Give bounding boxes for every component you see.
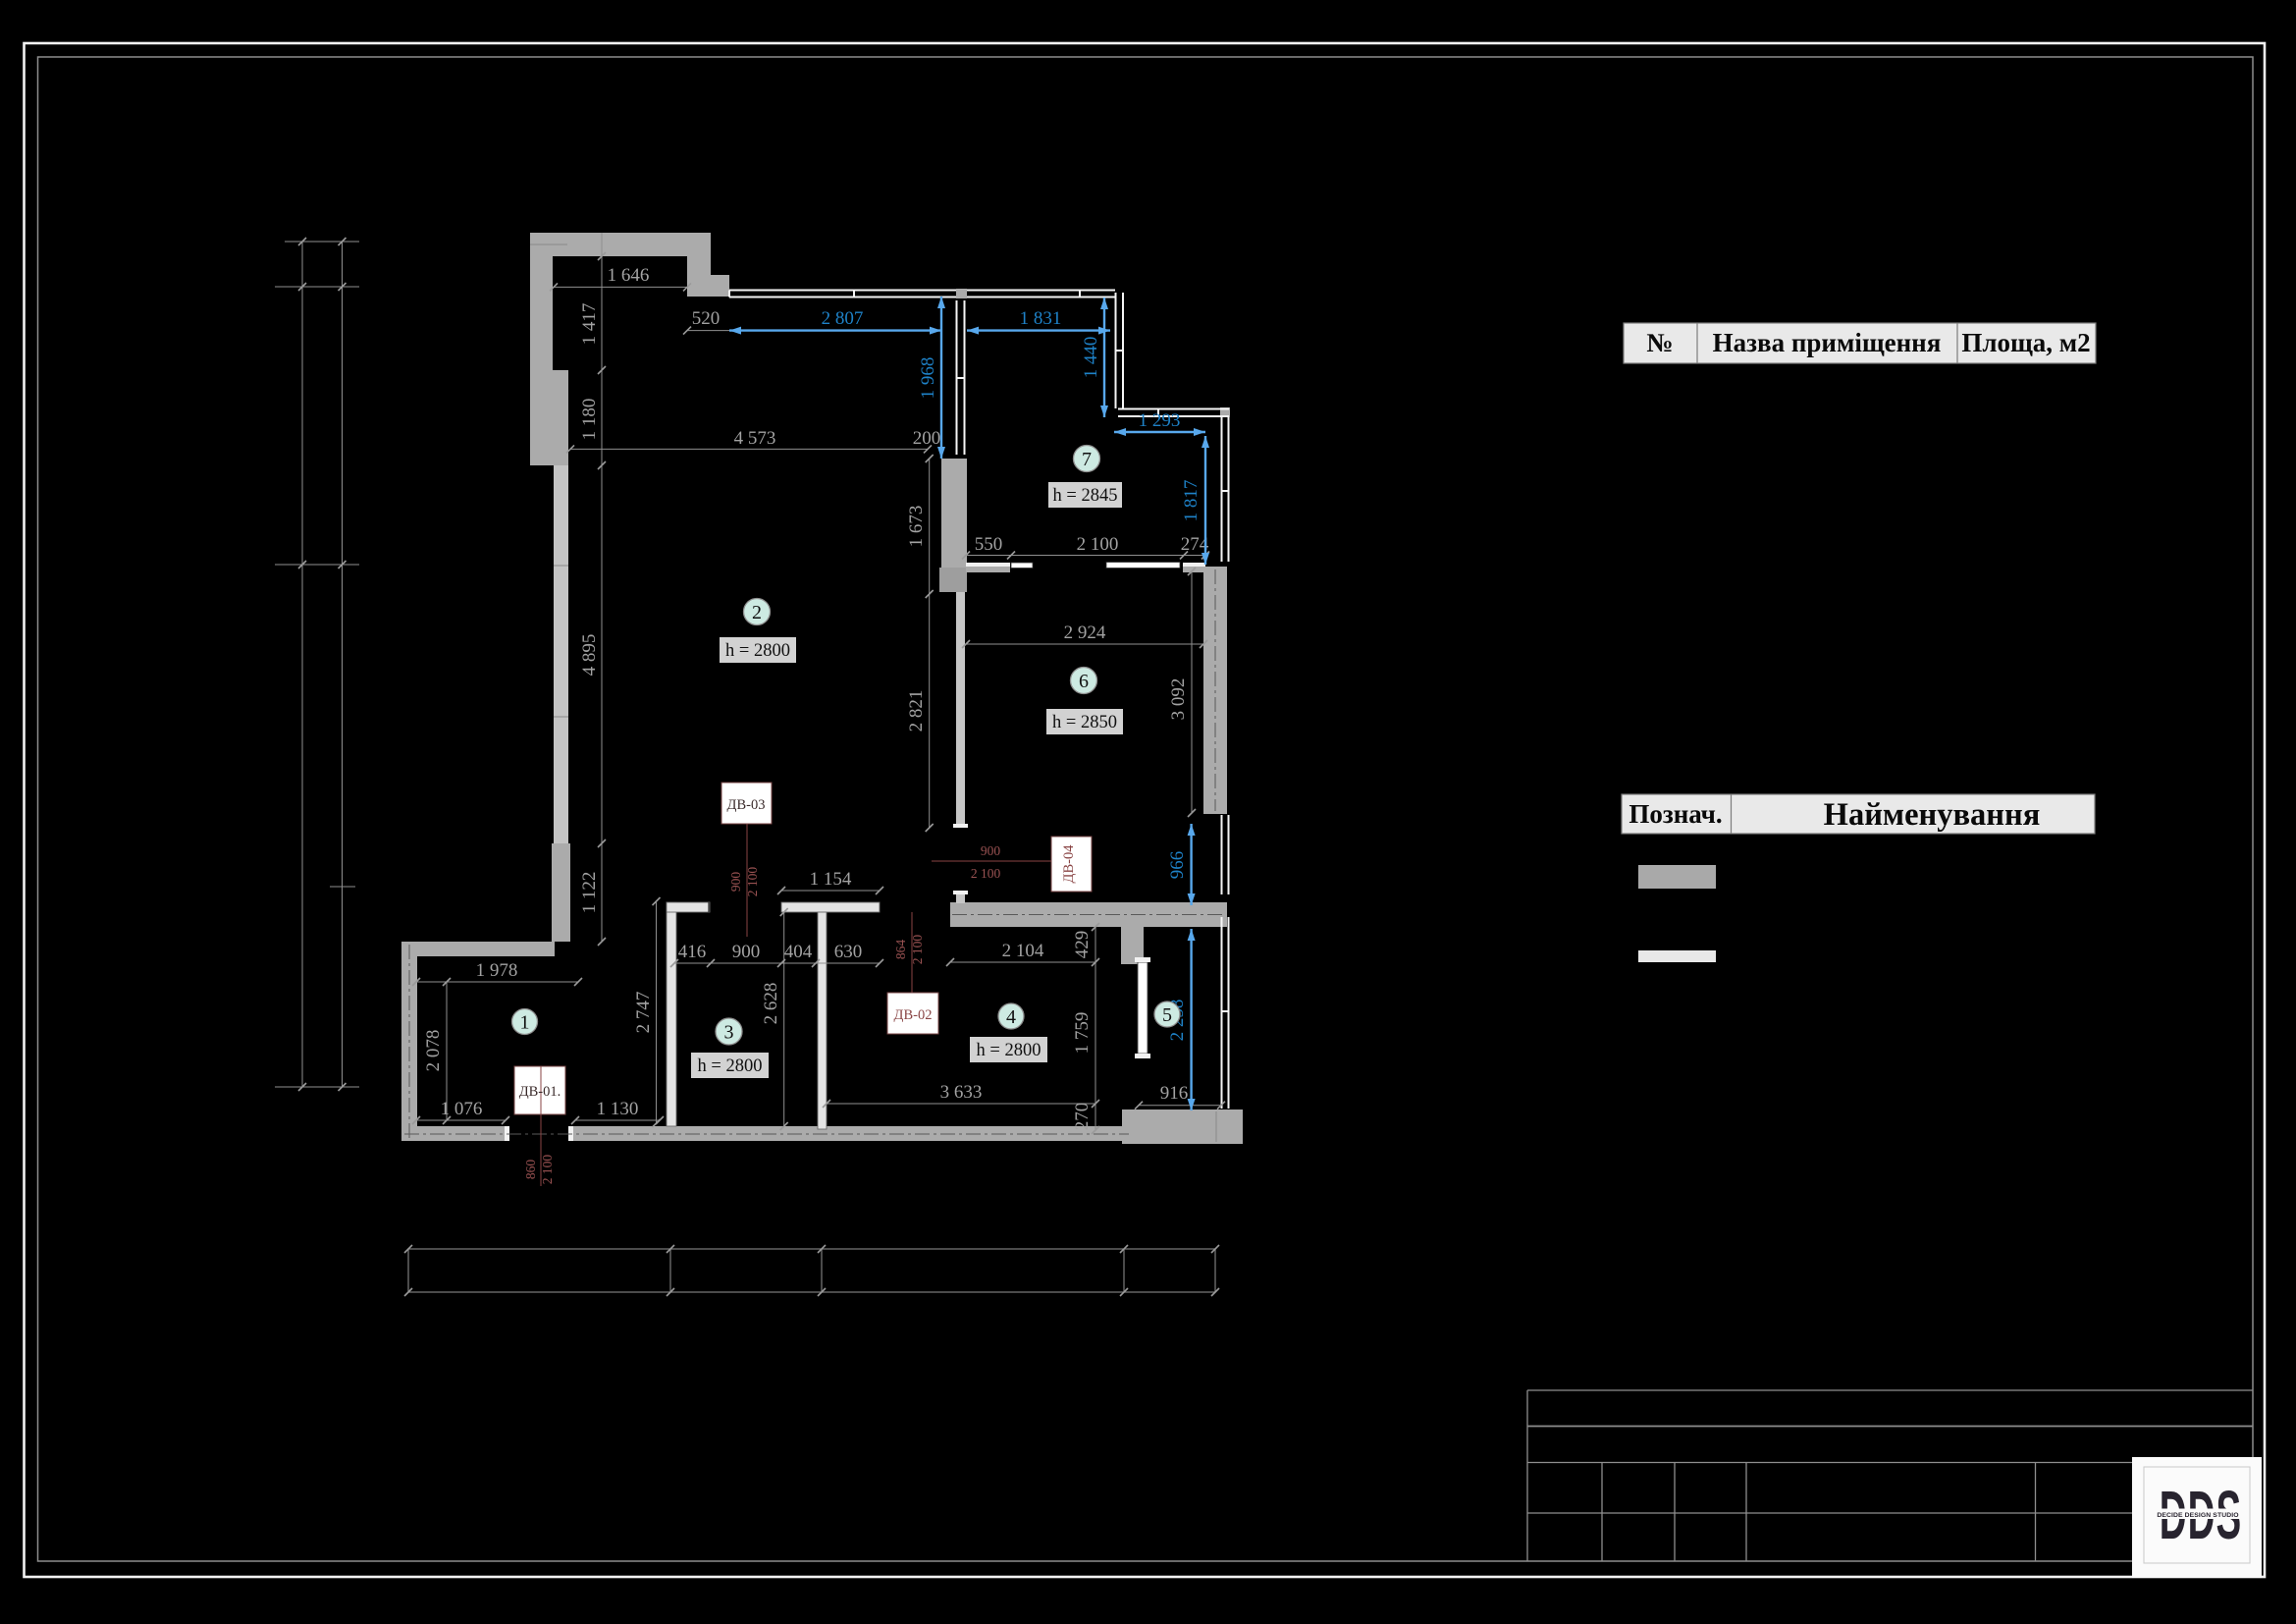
svg-text:429: 429 [1072, 931, 1093, 959]
svg-text:3 092: 3 092 [1168, 678, 1189, 721]
svg-text:ДВ-03: ДВ-03 [727, 797, 766, 813]
svg-text:864: 864 [893, 940, 908, 960]
svg-text:270: 270 [1072, 1103, 1093, 1131]
svg-text:1 646: 1 646 [608, 265, 650, 286]
svg-text:h = 2845: h = 2845 [1053, 486, 1118, 506]
svg-text:1 673: 1 673 [906, 506, 927, 548]
svg-text:Площа, м2: Площа, м2 [1961, 328, 2090, 357]
svg-text:1 293: 1 293 [1139, 410, 1181, 431]
svg-text:520: 520 [692, 308, 721, 329]
svg-text:2 100: 2 100 [745, 867, 760, 897]
svg-text:4 895: 4 895 [579, 634, 600, 677]
svg-text:1 417: 1 417 [579, 303, 600, 346]
svg-text:DECIDE DESIGN STUDIO: DECIDE DESIGN STUDIO [2157, 1512, 2238, 1519]
svg-text:916: 916 [1160, 1083, 1189, 1104]
svg-text:1 154: 1 154 [810, 869, 852, 890]
svg-text:2 104: 2 104 [1002, 941, 1044, 961]
svg-text:h = 2800: h = 2800 [977, 1041, 1041, 1060]
svg-text:2 100: 2 100 [971, 866, 1001, 881]
svg-text:h = 2800: h = 2800 [698, 1056, 763, 1076]
svg-text:1: 1 [520, 1012, 530, 1034]
svg-text:4: 4 [1006, 1006, 1016, 1028]
svg-text:1 130: 1 130 [597, 1099, 639, 1119]
svg-text:ДВ-04: ДВ-04 [1061, 844, 1077, 884]
svg-text:1 831: 1 831 [1020, 308, 1062, 329]
svg-text:860: 860 [523, 1160, 538, 1180]
svg-text:5: 5 [1162, 1004, 1172, 1026]
svg-text:404: 404 [784, 942, 813, 962]
svg-text:Познач.: Познач. [1629, 799, 1722, 829]
svg-text:3: 3 [724, 1022, 734, 1044]
svg-text:550: 550 [975, 534, 1003, 555]
svg-text:3 633: 3 633 [940, 1082, 983, 1103]
svg-text:1 817: 1 817 [1181, 480, 1201, 522]
svg-text:2 100: 2 100 [540, 1155, 555, 1185]
svg-text:1 440: 1 440 [1081, 337, 1101, 379]
svg-text:2 807: 2 807 [822, 308, 864, 329]
svg-text:h = 2800: h = 2800 [725, 641, 790, 661]
svg-text:6: 6 [1079, 671, 1089, 692]
svg-text:2: 2 [752, 602, 762, 623]
svg-text:ДВ-01.: ДВ-01. [519, 1084, 561, 1100]
svg-text:2 924: 2 924 [1064, 623, 1106, 643]
svg-text:2 628: 2 628 [761, 983, 781, 1025]
svg-text:1 122: 1 122 [579, 872, 600, 914]
svg-text:630: 630 [834, 942, 863, 962]
svg-text:416: 416 [678, 942, 707, 962]
svg-text:1 076: 1 076 [441, 1099, 483, 1119]
svg-text:Назва приміщення: Назва приміщення [1713, 328, 1942, 357]
svg-text:200: 200 [913, 428, 941, 449]
svg-text:ДВ-02: ДВ-02 [894, 1007, 933, 1023]
svg-text:Найменування: Найменування [1824, 797, 2041, 833]
svg-text:2 100: 2 100 [910, 935, 925, 965]
svg-text:1 968: 1 968 [918, 357, 938, 400]
svg-text:1 180: 1 180 [579, 399, 600, 441]
svg-text:2 821: 2 821 [906, 690, 927, 732]
svg-text:2 747: 2 747 [633, 992, 654, 1034]
svg-text:4 573: 4 573 [734, 428, 776, 449]
svg-text:900: 900 [732, 942, 761, 962]
svg-text:7: 7 [1082, 449, 1092, 470]
svg-text:900: 900 [981, 843, 1001, 858]
svg-text:№: № [1646, 328, 1673, 357]
svg-text:966: 966 [1167, 851, 1188, 880]
svg-text:h = 2850: h = 2850 [1052, 713, 1117, 732]
svg-text:1 759: 1 759 [1072, 1012, 1093, 1055]
svg-text:2 078: 2 078 [423, 1030, 444, 1072]
svg-text:1 978: 1 978 [476, 960, 518, 981]
svg-text:900: 900 [728, 872, 743, 893]
svg-text:2 100: 2 100 [1077, 534, 1119, 555]
